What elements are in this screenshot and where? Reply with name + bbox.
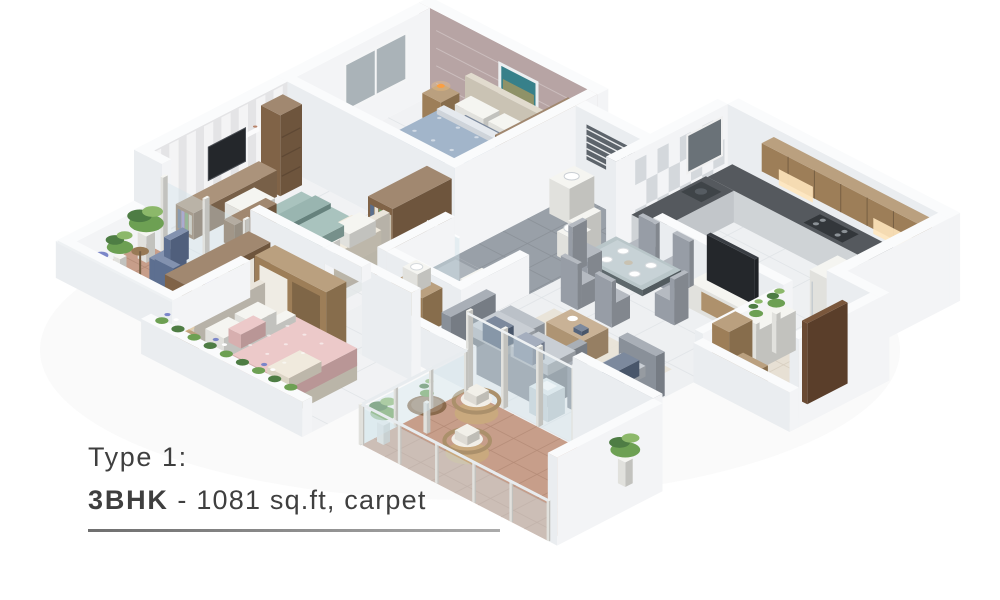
unit-type-label: 3BHK bbox=[88, 485, 169, 515]
plan-type-label: Type 1: bbox=[88, 442, 500, 473]
unit-details-label: - 1081 sq.ft, carpet bbox=[169, 485, 427, 515]
floor-plan-page: Type 1: 3BHK - 1081 sq.ft, carpet bbox=[0, 0, 1000, 600]
caption-underline bbox=[88, 529, 500, 532]
plan-spec-line: 3BHK - 1081 sq.ft, carpet bbox=[88, 485, 500, 516]
plan-caption: Type 1: 3BHK - 1081 sq.ft, carpet bbox=[88, 442, 500, 532]
